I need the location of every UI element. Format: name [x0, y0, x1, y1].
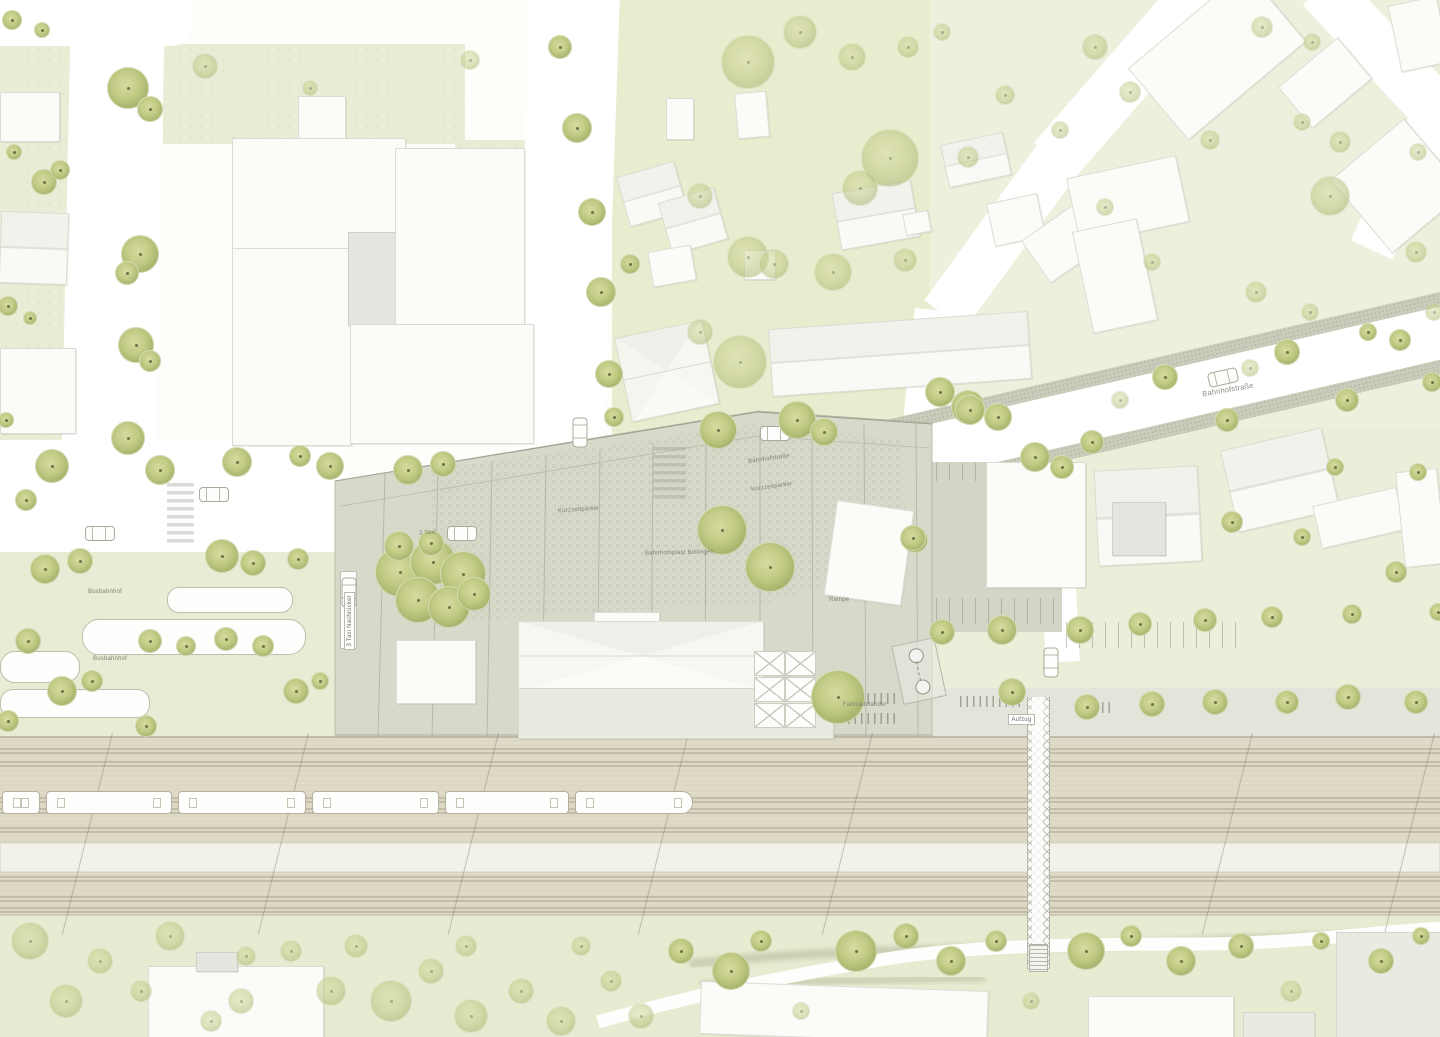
tree-icon [1335, 388, 1359, 412]
tree-icon [713, 335, 767, 389]
building [232, 248, 352, 446]
train-door [287, 798, 295, 808]
tree-icon [995, 85, 1015, 105]
tree-icon [1096, 198, 1114, 216]
tree-icon [1409, 463, 1427, 481]
tree-icon [985, 930, 1007, 952]
tree-icon [929, 619, 955, 645]
tree-icon [1329, 131, 1351, 153]
tree-icon [1074, 694, 1100, 720]
train-door [420, 798, 428, 808]
tree-icon [176, 636, 196, 656]
tree-icon [955, 395, 985, 425]
tree-icon [687, 183, 713, 209]
tree-icon [1335, 684, 1361, 710]
canopy-skylight [785, 651, 816, 676]
tree-icon [222, 447, 252, 477]
tree-icon [1425, 303, 1440, 321]
tree-icon [745, 542, 795, 592]
tree-icon [47, 676, 77, 706]
train-door [189, 798, 197, 808]
bus-platform [167, 587, 293, 613]
tree-icon [1228, 933, 1254, 959]
tree-icon [893, 248, 917, 272]
tree-icon [455, 935, 477, 957]
tree-icon [1202, 689, 1228, 715]
tree-icon [1241, 359, 1259, 377]
tree-icon [984, 403, 1012, 431]
train-door [153, 798, 161, 808]
train-door [21, 798, 29, 808]
tree-icon [1128, 612, 1152, 636]
tree-icon [1111, 391, 1129, 409]
tree-icon [289, 445, 311, 467]
tree-icon [936, 946, 966, 976]
tree-icon [508, 978, 534, 1004]
building [647, 244, 697, 287]
building [1088, 996, 1234, 1037]
tree-icon [1303, 33, 1321, 51]
tree-icon [35, 449, 69, 483]
tree-icon [6, 144, 22, 160]
tree-icon [900, 525, 926, 551]
tree-icon [192, 53, 218, 79]
tree-icon [1067, 932, 1105, 970]
tree-icon [280, 940, 302, 962]
tree-icon [287, 548, 309, 570]
tree-icon [67, 548, 93, 574]
tree-icon [814, 253, 852, 291]
tree-icon [750, 930, 772, 952]
tree-icon [115, 261, 139, 285]
tree-icon [1422, 372, 1440, 392]
tree-icon [1261, 606, 1283, 628]
tree-icon [586, 277, 616, 307]
building [666, 98, 694, 140]
tree-icon [252, 635, 274, 657]
building [902, 210, 931, 236]
tree-icon [1120, 925, 1142, 947]
tree-icon [2, 10, 22, 30]
tree-icon [792, 1002, 810, 1020]
tree-icon [811, 670, 865, 724]
tree-icon [578, 198, 606, 226]
map-label: Busbahnhof [93, 656, 127, 662]
tree-icon [111, 421, 145, 455]
ramp-dashed-line [916, 661, 921, 681]
tree-icon [1359, 323, 1377, 341]
tree-icon [214, 627, 238, 651]
tree-icon [311, 672, 329, 690]
car-icon [199, 487, 229, 502]
tree-icon [1143, 253, 1161, 271]
tree-icon [200, 1010, 222, 1032]
building [1336, 932, 1440, 1037]
map-label: Bahnhofsplatz Bellingen [645, 549, 714, 556]
tree-icon [316, 976, 346, 1006]
building [824, 500, 915, 606]
tree-icon [1245, 281, 1267, 303]
tree-icon [1082, 34, 1108, 60]
tree-icon [548, 35, 572, 59]
car-icon [573, 418, 588, 448]
tree-icon [893, 923, 919, 949]
car-icon [1044, 648, 1059, 678]
train-car [46, 791, 172, 814]
train-door [57, 798, 65, 808]
building [518, 621, 764, 691]
tree-icon [1326, 458, 1344, 476]
train-door [13, 798, 21, 808]
train-door [456, 798, 464, 808]
train-car [178, 791, 306, 814]
tree-icon [668, 938, 694, 964]
footbridge-stairs [1029, 944, 1048, 972]
train-door [323, 798, 331, 808]
tree-icon [15, 489, 37, 511]
tree-icon [135, 715, 157, 737]
site-plan: BusbahnhofBusbahnhof2 Taxi3 Taxi Nachrüc… [0, 0, 1440, 1037]
tree-icon [595, 360, 623, 388]
tree-icon [138, 629, 162, 653]
map-label: Aufzug [1008, 714, 1035, 725]
tree-icon [130, 980, 152, 1002]
tree-icon [11, 922, 49, 960]
tree-icon [283, 678, 309, 704]
tree-icon [81, 670, 103, 692]
tree-icon [1293, 528, 1311, 546]
tree-icon [430, 451, 456, 477]
canopy-skylight [754, 677, 785, 702]
tree-icon [721, 35, 775, 89]
tree-icon [1152, 364, 1178, 390]
tree-icon [50, 160, 70, 180]
tree-icon [454, 999, 488, 1033]
tree-icon [1051, 121, 1069, 139]
train-car [312, 791, 439, 814]
tree-icon [30, 554, 60, 584]
map-label: 3 Taxi Nachrücker [344, 592, 355, 650]
tree-icon [783, 15, 817, 49]
tree-icon [87, 948, 113, 974]
crosswalk [167, 483, 194, 543]
ramp-circle-icon [914, 678, 932, 696]
tree-icon [838, 43, 866, 71]
tree-icon [600, 970, 622, 992]
car-icon [85, 526, 115, 541]
tree-icon [810, 418, 838, 446]
train-door [674, 798, 682, 808]
tree-icon [1275, 690, 1299, 714]
tree-icon [759, 249, 789, 279]
tree-icon [687, 319, 713, 345]
tree-icon [457, 577, 491, 611]
tree-icon [1368, 948, 1394, 974]
tree-icon [933, 23, 951, 41]
train-car [2, 791, 40, 814]
tree-icon [205, 539, 239, 573]
tree-icon [712, 952, 750, 990]
tree-icon [1119, 81, 1141, 103]
tree-icon [1301, 303, 1319, 321]
canopy-skylight [754, 703, 785, 728]
tree-icon [344, 934, 368, 958]
tree-icon [1274, 339, 1300, 365]
tree-icon [620, 254, 640, 274]
rails-south [0, 877, 1440, 912]
tree-icon [228, 988, 254, 1014]
tree-icon [1405, 241, 1427, 263]
tree-icon [236, 946, 256, 966]
tree-icon [1215, 408, 1239, 432]
tree-icon [842, 170, 878, 206]
tree-icon [1412, 927, 1430, 945]
tree-icon [1193, 608, 1217, 632]
tree-icon [1066, 616, 1094, 644]
tree-icon [1293, 113, 1311, 131]
map-label: Fahrradständer [843, 702, 887, 708]
tree-icon [1080, 430, 1104, 454]
tree-icon [370, 980, 412, 1022]
tree-icon [1020, 442, 1050, 472]
tree-icon [393, 455, 423, 485]
tree-icon [316, 452, 344, 480]
tree-icon [418, 958, 444, 984]
tree-icon [155, 921, 185, 951]
tree-icon [384, 531, 414, 561]
tree-icon [1312, 932, 1330, 950]
tree-icon [1280, 980, 1302, 1002]
building [350, 324, 534, 444]
tree-icon [1221, 511, 1243, 533]
tree-icon [628, 1003, 654, 1029]
tree-icon [699, 411, 737, 449]
tree-icon [460, 50, 480, 70]
tree-icon [604, 407, 624, 427]
tree-icon [49, 984, 83, 1018]
building [395, 148, 525, 336]
tree-icon [562, 113, 592, 143]
building [0, 211, 69, 285]
train-car [575, 791, 693, 814]
tree-icon [1429, 603, 1440, 621]
tree-icon [34, 22, 50, 38]
tree-icon [1022, 992, 1040, 1010]
tree-icon [571, 936, 591, 956]
tree-icon [23, 311, 37, 325]
crosswalk [653, 447, 686, 501]
tree-icon [145, 455, 175, 485]
car-icon [447, 526, 477, 541]
train-door [550, 798, 558, 808]
tree-icon [1404, 690, 1428, 714]
building [1112, 502, 1166, 556]
tree-icon [1200, 130, 1220, 150]
building [986, 462, 1086, 588]
tree-icon [998, 678, 1026, 706]
canopy-skylight [754, 651, 785, 676]
tree-icon [697, 505, 747, 555]
map-label: Busbahnhof [88, 589, 122, 595]
tree-icon [957, 146, 979, 168]
train-car [445, 791, 569, 814]
building [396, 640, 476, 704]
tree-icon [15, 628, 41, 654]
map-label: Rampe [829, 597, 849, 603]
tree-icon [1050, 455, 1074, 479]
building [0, 92, 60, 142]
map-label: 2 Taxi [419, 530, 436, 537]
tree-icon [137, 96, 163, 122]
tree-icon [546, 1006, 576, 1036]
tree-icon [302, 80, 318, 96]
tree-icon [1139, 691, 1165, 717]
canopy-skylight [785, 703, 816, 728]
train-door [586, 798, 594, 808]
tree-icon [987, 615, 1017, 645]
building [298, 96, 346, 142]
tree-icon [897, 36, 919, 58]
building [1243, 1012, 1315, 1037]
building [699, 981, 989, 1037]
tree-icon [1166, 946, 1196, 976]
tree-icon [835, 930, 877, 972]
tree-icon [1251, 16, 1273, 38]
tree-icon [1342, 604, 1362, 624]
building [196, 952, 238, 972]
tree-icon [139, 350, 161, 372]
tree-icon [1409, 143, 1427, 161]
tree-icon [240, 550, 266, 576]
footbridge-walkway [1032, 697, 1043, 969]
tree-icon [1389, 329, 1411, 351]
building [734, 91, 770, 140]
tree-icon [1385, 561, 1407, 583]
tree-icon [1310, 176, 1350, 216]
